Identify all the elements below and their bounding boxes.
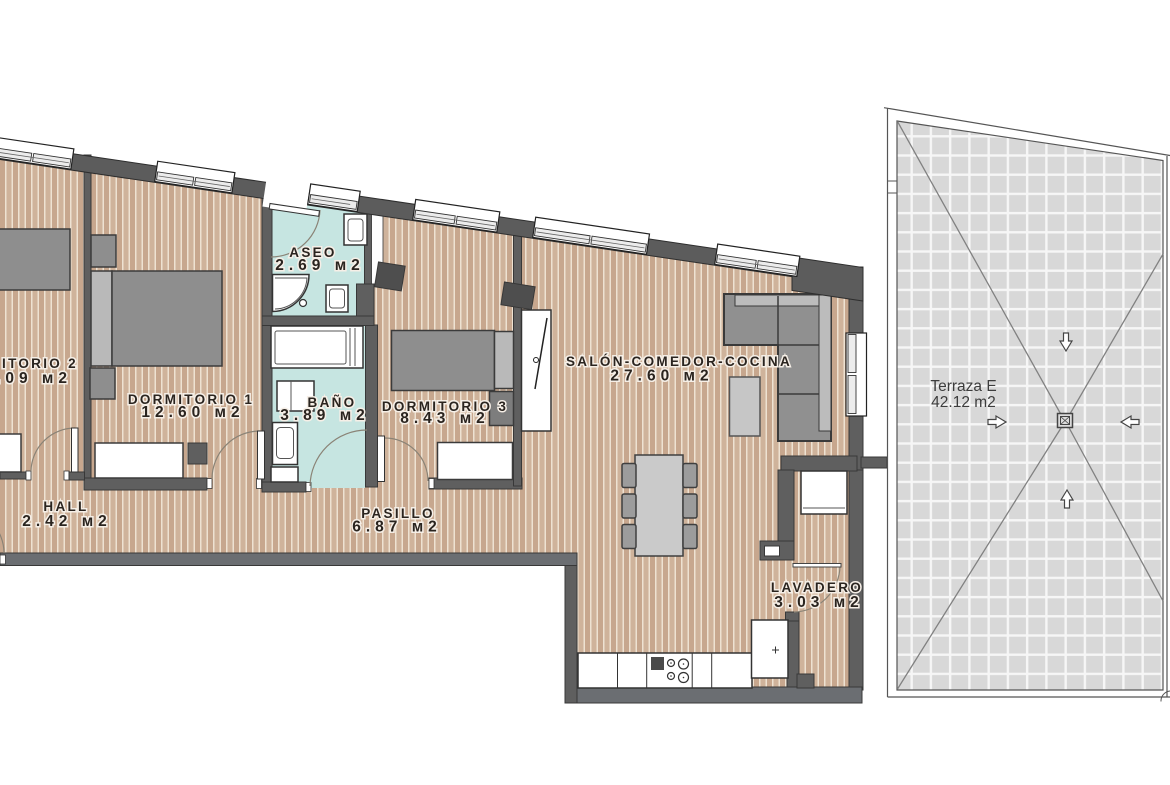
svg-text:3.03 м2: 3.03 м2 — [774, 594, 864, 611]
svg-text:8.43 м2: 8.43 м2 — [400, 410, 490, 427]
svg-text:HALL: HALL — [43, 499, 88, 514]
svg-text:2.69 м2: 2.69 м2 — [275, 257, 365, 274]
svg-text:42.12 m2: 42.12 m2 — [931, 394, 996, 411]
svg-text:.09 м2: .09 м2 — [0, 370, 72, 387]
svg-text:ITORIO 2: ITORIO 2 — [2, 356, 78, 371]
svg-text:6.87 м2: 6.87 м2 — [352, 519, 442, 536]
svg-text:2.42 м2: 2.42 м2 — [22, 513, 112, 530]
svg-text:27.60 м2: 27.60 м2 — [610, 368, 713, 385]
svg-text:LAVADERO: LAVADERO — [771, 580, 863, 595]
svg-text:3.89 м2: 3.89 м2 — [280, 407, 370, 424]
svg-text:Terraza E: Terraza E — [930, 378, 996, 395]
svg-text:12.60 м2: 12.60 м2 — [141, 404, 244, 421]
